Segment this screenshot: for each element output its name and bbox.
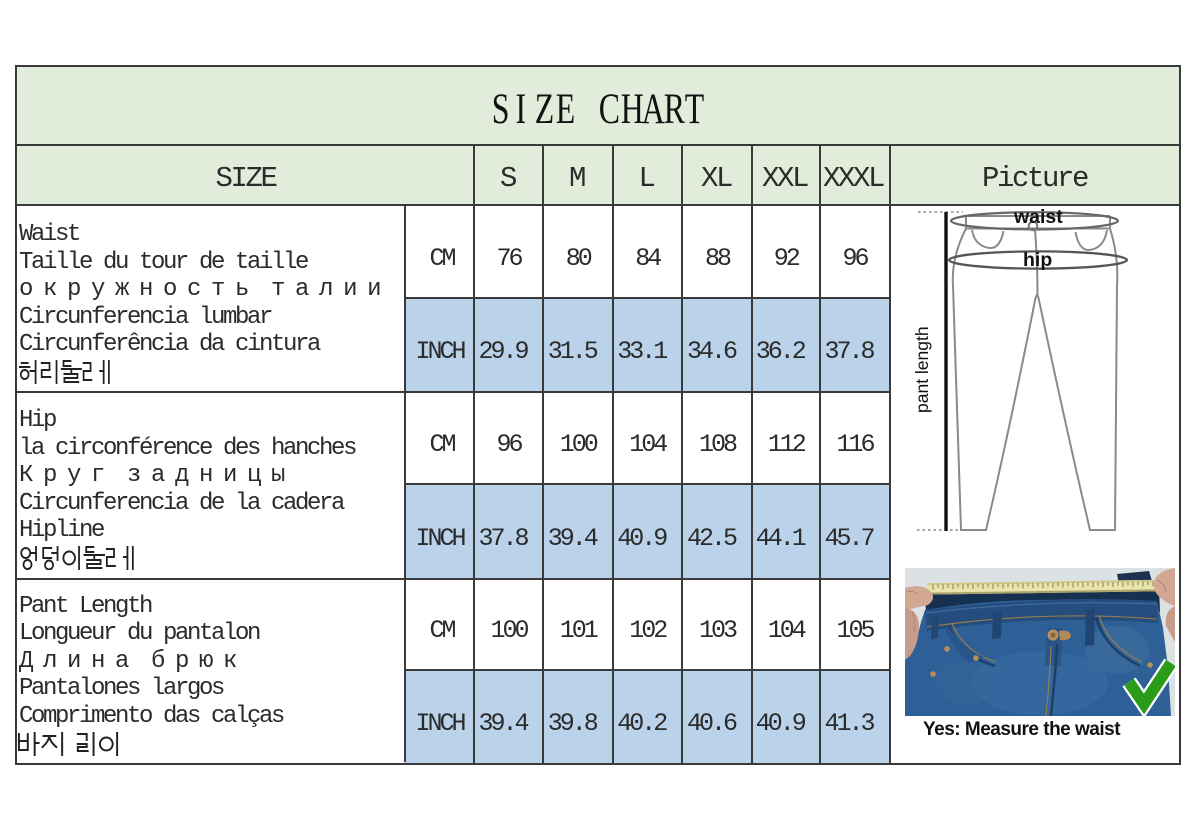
svg-text:hip: hip	[1023, 249, 1052, 271]
svg-text:waist: waist	[1013, 206, 1063, 228]
svg-text:pant length: pant length	[912, 326, 932, 413]
